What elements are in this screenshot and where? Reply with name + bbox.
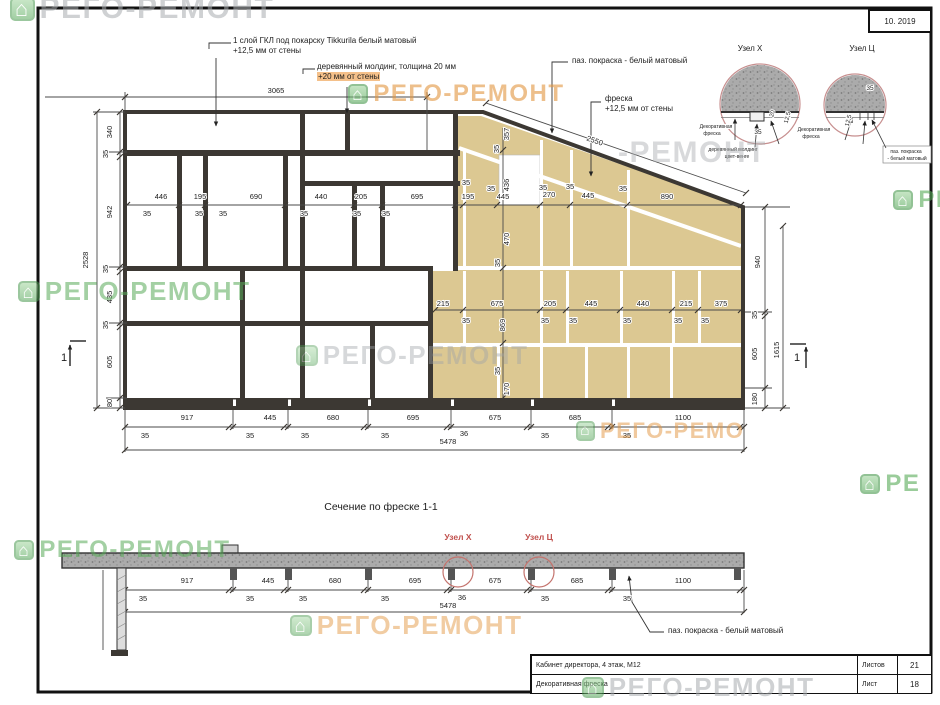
dim-label: 940 (753, 256, 762, 269)
dim-label: 80 (105, 399, 114, 407)
dim-label: 35 (623, 316, 631, 325)
dim-label: 35 (246, 431, 254, 440)
callout-gkl-line1: 1 слой ГКЛ под покарску Tikkurila белый … (233, 36, 416, 45)
dim-label: 35 (139, 594, 147, 603)
dim-label: 35 (381, 431, 389, 440)
dim-label: 675 (489, 576, 502, 585)
dim-label: 35 (541, 431, 549, 440)
section-bar (62, 553, 744, 568)
dim-label: 36 (458, 593, 466, 602)
dim-label: 445 (582, 191, 595, 200)
dim-label: 36 (460, 429, 468, 438)
dim-label: 440 (315, 192, 328, 201)
dim-label: 675 (491, 299, 504, 308)
dim-label: фреска (703, 131, 720, 137)
dim-label: Декоративная (798, 127, 831, 133)
dim-label: 2528 (81, 252, 90, 269)
dim-label: 35 (493, 259, 502, 267)
dim-label: 35 (566, 182, 574, 191)
callout-molding: деревянный молдинг, толщина 20 мм +20 мм… (317, 62, 456, 83)
dim-label: 195 (194, 192, 207, 201)
dim-label: Узел Х (444, 532, 471, 542)
dim-label: 445 (262, 576, 275, 585)
dim-label: 35 (143, 209, 151, 218)
dim-label: 35 (623, 594, 631, 603)
dim-label: 35 (382, 209, 390, 218)
dim-label: 35 (623, 431, 631, 440)
dim-label: 3065 (268, 86, 285, 95)
dim-label: паз. покраска (890, 149, 922, 155)
dim-label: 695 (407, 413, 420, 422)
dim-label: Декоративная (700, 124, 733, 130)
date-box: 10. 2019 (868, 9, 932, 33)
dim-label: 35 (381, 594, 389, 603)
dim-label: 35 (701, 316, 709, 325)
title-block-project: Кабинет директора, 4 этаж, М12 (532, 656, 858, 675)
dim-label: 35 (541, 594, 549, 603)
dim-label: 215 (437, 299, 450, 308)
dim-label: 205 (355, 192, 368, 201)
dim-label: 205 (544, 299, 557, 308)
dim-label: Узел Ц (525, 532, 553, 542)
callout-groove-paint: паз. покраска - белый матовый (572, 56, 687, 66)
dim-label: 35 (754, 129, 762, 136)
dim-label: 1615 (772, 342, 781, 359)
dim-label: 35 (487, 184, 495, 193)
sheets-value: 21 (898, 656, 932, 675)
dim-label: 35 (300, 209, 308, 218)
dim-label: 605 (105, 356, 114, 369)
dim-label: 180 (750, 393, 759, 406)
dim-label: 35 (462, 178, 470, 187)
callout-gkl: 1 слой ГКЛ под покарску Tikkurila белый … (233, 36, 416, 57)
dim-label: цвет-венге (725, 154, 750, 160)
dim-label: 35 (101, 321, 110, 329)
dim-label: 340 (105, 126, 114, 139)
dim-label: 445 (585, 299, 598, 308)
sheet-label: Лист (858, 675, 898, 694)
wall-elevation (125, 112, 743, 408)
dim-label: 869 (498, 319, 507, 332)
callout-fresco: фреска +12,5 мм от стены (605, 94, 673, 115)
dim-label: 35 (246, 594, 254, 603)
dim-label: 695 (409, 576, 422, 585)
dim-label: 35 (539, 183, 547, 192)
dim-label: 680 (327, 413, 340, 422)
dim-label: 675 (489, 413, 502, 422)
dim-label: 685 (571, 576, 584, 585)
callout-groove-paint-text: паз. покраска - белый матовый (572, 56, 687, 65)
dim-label: 5478 (440, 601, 457, 610)
dim-label: 35 (299, 594, 307, 603)
dim-label: 357 (502, 128, 511, 141)
dim-label: 35 (141, 431, 149, 440)
dim-label: 695 (411, 192, 424, 201)
dim-label: 446 (155, 192, 168, 201)
dim-label: 445 (264, 413, 277, 422)
dim-label: 35 (569, 316, 577, 325)
sheet-value: 18 (898, 675, 932, 694)
dim-label: 35 (674, 316, 682, 325)
dim-label: 1 (61, 352, 67, 364)
dim-label: 1100 (675, 576, 691, 585)
dim-label: - белый матовый (887, 155, 927, 162)
fresco-section-view (62, 545, 744, 656)
dim-label: 1100 (675, 413, 691, 422)
dim-label: Сечение по фреске 1-1 (324, 501, 438, 513)
callout-gkl-line2: +12,5 мм от стены (233, 46, 301, 55)
dim-label: 435 (105, 291, 114, 304)
callout-fresco-line1: фреска (605, 94, 633, 103)
dim-label: 35 (462, 316, 470, 325)
dim-label: 35 (750, 311, 759, 319)
dim-label: 917 (181, 576, 194, 585)
title-block-drawing-name: Декоративная фреска (532, 675, 858, 694)
dim-label: 917 (181, 413, 194, 422)
dim-label: деревянный молдинг (708, 146, 757, 153)
dim-label: 436 (502, 179, 511, 192)
dim-label: 685 (569, 413, 582, 422)
dim-label: 35 (195, 209, 203, 218)
dim-label: 35 (101, 150, 110, 158)
title-block: Кабинет директора, 4 этаж, М12 Листов 21… (530, 654, 932, 694)
dim-label: 445 (497, 192, 510, 201)
dim-label: 2550 (585, 134, 604, 148)
dim-label: 1 (794, 352, 800, 364)
dim-label: 942 (105, 206, 114, 219)
callout-fresco-line2: +12,5 мм от стены (605, 104, 673, 113)
dim-label: 440 (637, 299, 650, 308)
drawing-sheet: 3065255034035942354353560580252844619569… (0, 0, 940, 705)
callout-section-groove-paint-text: паз. покраска - белый матовый (668, 626, 783, 635)
dim-label: 215 (680, 299, 693, 308)
dim-label: 5478 (440, 437, 457, 446)
dim-label: 35 (541, 316, 549, 325)
callout-molding-line1: деревянный молдинг, толщина 20 мм (317, 62, 456, 71)
dim-label: 35 (492, 145, 501, 153)
dim-label: 35 (866, 85, 874, 92)
dim-label: Узел Х (738, 44, 763, 53)
dim-label: 470 (502, 233, 511, 246)
dim-label: 35 (619, 184, 627, 193)
technical-drawing-canvas: 3065255034035942354353560580252844619569… (0, 0, 940, 705)
dim-label: 35 (301, 431, 309, 440)
dim-label: 35 (101, 265, 110, 273)
callout-section-groove-paint: паз. покраска - белый матовый (668, 626, 783, 636)
dim-label: фреска (802, 134, 819, 140)
dim-label: Узел Ц (849, 44, 874, 53)
dim-label: 690 (250, 192, 263, 201)
sheets-label: Листов (858, 656, 898, 675)
dim-label: 170 (502, 383, 511, 396)
dim-label: 605 (750, 348, 759, 361)
dim-label: 375 (715, 299, 728, 308)
dim-label: 680 (329, 576, 342, 585)
dim-label: 195 (462, 192, 475, 201)
callout-molding-line2: +20 мм от стены (317, 72, 380, 81)
dim-label: 35 (493, 367, 502, 375)
dim-label: 890 (661, 192, 674, 201)
dim-label: 35 (353, 209, 361, 218)
dim-label: 35 (219, 209, 227, 218)
